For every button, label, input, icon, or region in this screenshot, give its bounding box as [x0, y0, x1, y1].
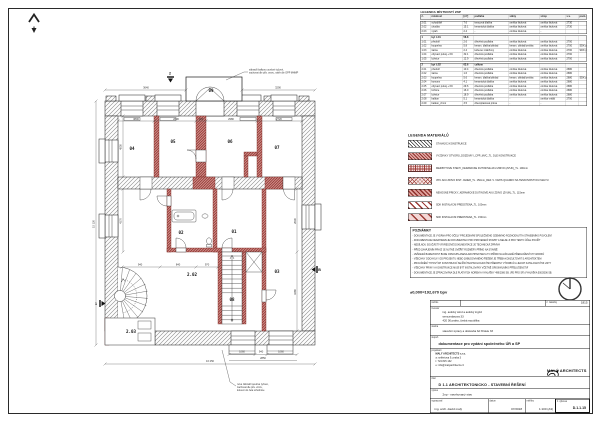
room-legend-table: č.místnost[m²]podlahastěnystrops.v.pozn. [420, 15, 587, 20]
table-cell [579, 30, 587, 34]
table-cell: omítka štuková [540, 45, 566, 49]
material-swatch [408, 177, 432, 185]
table-cell: koupelna [431, 45, 463, 49]
table-cell: 2.03 [421, 30, 431, 34]
table-group: 2.01schodiště7.6teracová dlažbaomítka št… [420, 21, 587, 34]
table-cell: strop [540, 15, 566, 19]
table-cell: ložnice [431, 93, 463, 97]
table-cell: 1.01 [421, 40, 431, 44]
table-cell: omítka štuková [509, 81, 540, 85]
dimension-text: 3640 [143, 86, 149, 90]
drawing-sheet: 0405060709020103082.022.0338002630300298… [0, 0, 600, 424]
table-cell [509, 64, 540, 68]
table-cell: 2.09 [421, 102, 431, 106]
table-cell [540, 64, 566, 68]
datum-text: ±0,000=192,670 bpv [410, 290, 460, 295]
scale-label: měřítko [527, 400, 535, 403]
table-cell: omítka štuková [509, 68, 540, 72]
table-row: 1.05ložnice12.9dřevěná podlahaomítka štu… [421, 57, 587, 61]
table-cell: dřevěná podlaha [474, 85, 509, 89]
material-swatch [408, 152, 432, 160]
table-group: 2byt č.0263.6celkem2.01předsíň10.4dřevěn… [420, 63, 587, 106]
dimension-text: 840 [176, 263, 181, 267]
material-swatch [408, 189, 432, 197]
table-cell: 2680 [566, 93, 579, 97]
table-cell: omítka štuková [540, 93, 566, 97]
table-cell: omítka štuková [540, 26, 566, 30]
table-cell: dřevěná podlaha [474, 40, 509, 44]
material-item: SDK INSTALAČNÍ PŘEDSTĚNA_TL. 150mm [408, 214, 588, 222]
table-cell: 2680 [566, 76, 579, 80]
author-value: ing. arch. david malý [435, 408, 463, 411]
table-cell [566, 30, 579, 34]
table-cell: 2.06 [421, 89, 431, 93]
section-mark-label: 1 [95, 302, 97, 306]
material-label: SDK INSTALAČNÍ PŘEDSTĚNA_TL. 150mm [436, 216, 486, 219]
table-cell: omítka štuková [509, 49, 540, 53]
table-cell: - [509, 98, 540, 102]
table-cell: dřevoplastová prkna [474, 102, 509, 106]
table-cell [579, 21, 587, 25]
table-cell: chodba [431, 26, 463, 30]
investor-label: investor [432, 307, 440, 310]
number-label: č. výkresu [557, 400, 567, 403]
table-cell: omítka štuková [509, 85, 540, 89]
table-cell: omítka štuková [509, 53, 540, 57]
investor-line: 420 00 praha, česká republika [443, 319, 590, 323]
material-swatch [408, 214, 432, 222]
table-cell: - [509, 102, 540, 106]
table-cell [566, 102, 579, 106]
table-cell: SDK podhled [579, 76, 587, 80]
table-cell: keram. obklad/omítka [509, 76, 540, 80]
table-cell [579, 36, 587, 40]
datum-elevation: ±0,000=192,670 bpv [410, 290, 510, 298]
dimension-text: 2720 [276, 117, 282, 121]
table-cell: omítka štuková [509, 30, 540, 34]
balcony [186, 77, 242, 101]
table-cell: dřevěná podlaha [474, 72, 509, 76]
table-cell: podlaha [474, 15, 509, 19]
room-number: 2.03 [126, 329, 137, 334]
table-cell: 4.1 [463, 81, 474, 85]
table-cell: dřevěná podlaha [474, 93, 509, 97]
table-cell: omítka štuková [540, 81, 566, 85]
stamp-label: razítko [432, 301, 439, 304]
table-cell: byt č.02 [431, 64, 463, 68]
table-cell: omítka štuková [540, 40, 566, 44]
table-cell: šatna [431, 72, 463, 76]
table-cell: SDK podhled [579, 49, 587, 53]
table-cell: 2680 [566, 89, 579, 93]
table-cell: keram. dlažba/obklad [474, 45, 509, 49]
table-cell: 63.6 [463, 64, 474, 68]
table-cell: omítka štuková [540, 53, 566, 57]
table-group: 1byt č.0158.81.01předsíň2.6dřevěná podla… [420, 36, 587, 62]
table-cell [579, 57, 587, 61]
number-value: D.1.1.15 [573, 407, 586, 411]
table-cell: byt č.01 [431, 36, 463, 40]
table-cell: omítka štuková [540, 57, 566, 61]
table-cell: celkem [474, 64, 509, 68]
material-label: VPC AKU ZDIVO INST. JADER_TL. 150mm_REF.… [436, 179, 549, 182]
plan-annotation: kotvení do čela schodnice [237, 389, 265, 392]
table-cell: 2.4 [463, 49, 474, 53]
table-cell: omítka štuková [509, 57, 540, 61]
table-cell: stěny [509, 15, 540, 19]
material-item: STÁVAJÍCÍ KONSTRUKCE [408, 140, 588, 148]
stavba-value: stavební úpravy a dostavba bd hřídele 33 [443, 330, 590, 333]
table-cell: keramická dlažba [474, 98, 509, 102]
room-number: 03 [274, 269, 280, 274]
table-cell: 16.0 [463, 89, 474, 93]
table-cell: 2680 [566, 72, 579, 76]
table-cell: 12.9 [463, 57, 474, 61]
table-cell: 7.6 [463, 21, 474, 25]
room-number: 04 [129, 146, 135, 151]
room-legend-groups: 2.01schodiště7.6teracová dlažbaomítka št… [420, 21, 587, 106]
table-cell: omítka štuková [509, 26, 540, 30]
author-label: vypracoval [432, 400, 443, 403]
table-cell: koberec zátěžový [474, 49, 509, 53]
table-row: č.místnost[m²]podlahastěnystrops.v.pozn. [421, 15, 587, 19]
notes-panel: POZNÁMKY - DOKUMENTACE JE VYDÁNA PRO ÚČE… [410, 227, 587, 279]
table-cell: 5.1 [463, 98, 474, 102]
table-cell: 2 [421, 64, 431, 68]
table-cell: 2700 [566, 49, 579, 53]
stair-straight [222, 252, 262, 324]
table-cell: 2730 [566, 21, 579, 25]
dimension-text: 3800 [133, 117, 139, 121]
material-swatch [408, 201, 432, 209]
table-cell [579, 93, 587, 97]
table-cell: 2700 [566, 98, 579, 102]
table-cell: [m²] [463, 15, 474, 19]
table-cell: omítka štuková [509, 40, 540, 44]
table-cell: výtah [431, 30, 463, 34]
table-cell: keramická dlažba [474, 26, 509, 30]
table-cell: omítka štuková [509, 93, 540, 97]
table-cell: 2.6 [463, 40, 474, 44]
table-cell: 29.6 [463, 85, 474, 89]
table-cell: ložnice [431, 89, 463, 93]
table-cell [579, 26, 587, 30]
table-cell [566, 36, 579, 40]
projektant-line: e: info@malyarchitects.cz [436, 364, 590, 368]
room-number: 09 [208, 88, 214, 93]
table-cell: 18.9 [463, 93, 474, 97]
table-cell [579, 102, 587, 106]
material-item: SDK INSTALAČNÍ PŘEDSTĚNA_TL. 100mm [408, 201, 588, 209]
dimension-text: 2850 [260, 356, 266, 360]
table-cell: 2730 [566, 26, 579, 30]
table-cell: omítka štuková [540, 72, 566, 76]
table-cell: omítka štuková [540, 49, 566, 53]
dimension-text: 2630 [173, 117, 179, 121]
dimension-text: 940 [259, 350, 264, 354]
table-cell [509, 36, 540, 40]
room-number: 01 [231, 229, 237, 234]
table-cell [579, 72, 587, 76]
table-cell [540, 36, 566, 40]
dimension-text: 1060 [278, 350, 284, 354]
dimension-text: 4530 [119, 144, 123, 150]
dimension-text: 16 250 [206, 359, 214, 363]
material-item: VPC AKU ZDIVO INST. JADER_TL. 150mm_REF.… [408, 177, 588, 185]
table-cell: SDK podhled [579, 45, 587, 49]
title-block: razítko č. zakázky1815 investor ing. aut… [430, 300, 590, 413]
room-number: 06 [227, 139, 233, 144]
table-cell: omítka štuková [540, 85, 566, 89]
date-value: 07/2018 [511, 408, 522, 411]
material-label: VYZDÍVKY OTVORŮ_DOZDÍVKY_CPP_MVC_TL. DLE… [436, 155, 516, 158]
table-cell: keram. obklad/omítka [509, 45, 540, 49]
part-value: D 1.1 ARCHITEKTONICKO - STAVEBNÍ ŘEŠENÍ [439, 383, 590, 388]
table-cell: koupelna [431, 76, 463, 80]
dimension-text: 1060 [239, 350, 245, 354]
table-cell: 1.02 [421, 45, 431, 49]
room-legend: LEGENDA MÍSTNOSTÍ 2NP č.místnost[m²]podl… [420, 11, 587, 124]
table-cell: balkon_zimní [431, 102, 463, 106]
stupen-label: stupeň [432, 336, 439, 339]
table-cell: 2.01 [421, 68, 431, 72]
table-cell: 10.4 [463, 68, 474, 72]
malyarchitects-logo-icon [545, 369, 560, 377]
table-cell: schodiště [431, 21, 463, 25]
table-cell: 15.1 [463, 26, 474, 30]
table-cell: omítka štuková [540, 89, 566, 93]
table-cell: 2.07 [421, 93, 431, 97]
table-cell: obývací pokoj + KK [431, 53, 463, 57]
table-cell: 2.04 [421, 81, 431, 85]
table-cell: - [540, 102, 566, 106]
table-cell [579, 40, 587, 44]
table-cell: balkon [431, 98, 463, 102]
table-cell: ložnice [431, 57, 463, 61]
material-label: MEZIBYTOVÉ STĚNY_KERAMICKÉ DUTINOVÉ AKU … [436, 167, 528, 170]
stair-spiral [115, 267, 148, 325]
table-cell: 2.02 [421, 72, 431, 76]
projektant-label: projektant [432, 349, 442, 352]
notes-lines: - DOKUMENTACE JE VYDÁNA PRO ÚČELY PROJED… [413, 234, 585, 275]
table-cell: předsíň [431, 40, 463, 44]
table-cell: 1.6 [463, 72, 474, 76]
table-cell: 2700 [566, 57, 579, 61]
table-cell [579, 64, 587, 68]
table-cell [579, 85, 587, 89]
dimension-text: 300 [199, 117, 204, 121]
table-cell: 2700 [566, 40, 579, 44]
table-cell: 58.8 [463, 36, 474, 40]
table-cell: - [540, 30, 566, 34]
dimension-text: 15 120 [92, 219, 96, 227]
projektant-lines: MALÝ ARCHITECTS s.r.o.a: seifertova 9, p… [436, 353, 590, 368]
material-item: MEZIBYTOVÉ STĚNY_KERAMICKÉ DUTINOVÉ AKU … [408, 165, 588, 173]
stavba-label: stavba [432, 325, 439, 328]
material-label: NENOSNÉ PŘÍČKY_KERAMICKÉ DUTINOVÉ AKU ZD… [436, 191, 525, 194]
north-arrow-icon [29, 15, 39, 34]
table-cell: dřevěná podlaha [474, 68, 509, 72]
table-cell: 3.5 [463, 102, 474, 106]
table-cell: 2.08 [421, 98, 431, 102]
table-cell: 2680 [566, 68, 579, 72]
dimension-text: 3280 [293, 289, 297, 295]
materials-legend-title: LEGENDA MATERIÁLŮ [408, 134, 588, 138]
stupen-value: dokumentace pro vydání společného ÚR a S… [439, 342, 590, 347]
table-cell: - [474, 30, 509, 34]
material-label: STÁVAJÍCÍ KONSTRUKCE [436, 142, 467, 145]
table-cell: 1.05 [421, 57, 431, 61]
table-cell: 1 [421, 36, 431, 40]
material-item: NENOSNÉ PŘÍČKY_KERAMICKÉ DUTINOVÉ AKU ZD… [408, 189, 588, 197]
table-cell: místnost [431, 15, 463, 19]
table-cell: 2.02 [421, 26, 431, 30]
materials-legend: LEGENDA MATERIÁLŮ STÁVAJÍCÍ KONSTRUKCEVY… [408, 134, 588, 229]
table-cell: 2.03 [421, 76, 431, 80]
table-cell: 1.03 [421, 49, 431, 53]
table-cell: 2.05 [421, 85, 431, 89]
drawing-value: 2np - navrhovaný stav [443, 394, 590, 397]
room-number: 02 [178, 230, 184, 235]
table-cell: teracová dlažba [474, 21, 509, 25]
notes-title: POZNÁMKY [413, 229, 585, 233]
dimension-text: 2630 [293, 218, 297, 224]
material-swatch [408, 165, 432, 173]
table-cell: omítka vnější [540, 98, 566, 102]
table-cell: obývací pokoj + KK [431, 85, 463, 89]
table-cell: keramická dlažba [474, 81, 509, 85]
table-cell: předsíň [431, 68, 463, 72]
order-value: 1815 [581, 302, 588, 305]
table-row: 2.03výtah2.4-omítka štuková- [421, 30, 587, 34]
plan-annotation: zachovat dle pův. vzoru, nátěr dle OPP M… [249, 72, 299, 75]
table-cell: omítka štuková [540, 21, 566, 25]
table-cell: dřevěná podlaha [474, 53, 509, 57]
table-cell: 5.8 [463, 45, 474, 49]
table-cell: omítka štuková [509, 21, 540, 25]
date-label: datum [490, 400, 496, 403]
table-cell: 32.1 [463, 53, 474, 57]
table-cell [566, 64, 579, 68]
materials-legend-items: STÁVAJÍCÍ KONSTRUKCEVYZDÍVKY OTVORŮ_DOZD… [408, 140, 588, 221]
table-cell [579, 81, 587, 85]
table-cell: keram. dlažba/obklad [474, 76, 509, 80]
table-cell: dřevěná podlaha [474, 57, 509, 61]
material-label: SDK INSTALAČNÍ PŘEDSTĚNA_TL. 100mm [436, 204, 486, 207]
dimension-text: 940 [138, 263, 143, 267]
drawing-label: výkres [432, 389, 439, 392]
table-cell [474, 36, 509, 40]
table-cell: 1.04 [421, 53, 431, 57]
table-cell: 2700 [566, 45, 579, 49]
room-number: 07 [274, 145, 280, 150]
table-cell: omítka štuková [540, 76, 566, 80]
table-cell: pozn. [579, 15, 587, 19]
room-number: 08 [229, 297, 235, 302]
table-cell: č. [421, 15, 431, 19]
room-number: 05 [170, 139, 176, 144]
table-cell [579, 68, 587, 72]
table-cell: 2680 [566, 81, 579, 85]
investor-lines: ing. autický wind a autický ingridwences… [443, 311, 590, 324]
section-mark-label: 2 [169, 72, 171, 76]
dimension-text: 3290 [275, 86, 281, 90]
table-cell: s.v. [566, 15, 579, 19]
table-cell: omítka štuková [540, 68, 566, 72]
table-cell: 2.01 [421, 21, 431, 25]
room-number: 2.02 [187, 272, 198, 277]
table-cell: 5.6 [463, 76, 474, 80]
order-label: č. zakázky [547, 301, 558, 304]
table-cell: šatna [431, 49, 463, 53]
table-cell: omítka štuková [509, 72, 540, 76]
section-mark-label: B [318, 268, 321, 272]
table-cell [579, 89, 587, 93]
dimension-text: 4170 [119, 218, 123, 224]
table-row: 2.09balkon_zimní3.5dřevoplastová prkna-- [421, 102, 587, 106]
dimension-text: 2980 [228, 117, 234, 121]
table-cell [579, 53, 587, 57]
material-item: VYZDÍVKY OTVORŮ_DOZDÍVKY_CPP_MVC_TL. DLE… [408, 152, 588, 160]
dimension-text: 970 [205, 263, 210, 267]
part-label: část [432, 377, 436, 380]
table-cell: 2.4 [463, 30, 474, 34]
table-cell: 2680 [566, 85, 579, 89]
table-cell: 2700 [566, 53, 579, 57]
material-swatch [408, 140, 432, 148]
table-cell: omítka štuková [509, 89, 540, 93]
scale-value: 1:100 (A3) [539, 408, 553, 411]
doors [140, 150, 295, 302]
table-cell: komora [431, 81, 463, 85]
table-cell [579, 98, 587, 102]
table-cell: dřevěná podlaha [474, 89, 509, 93]
